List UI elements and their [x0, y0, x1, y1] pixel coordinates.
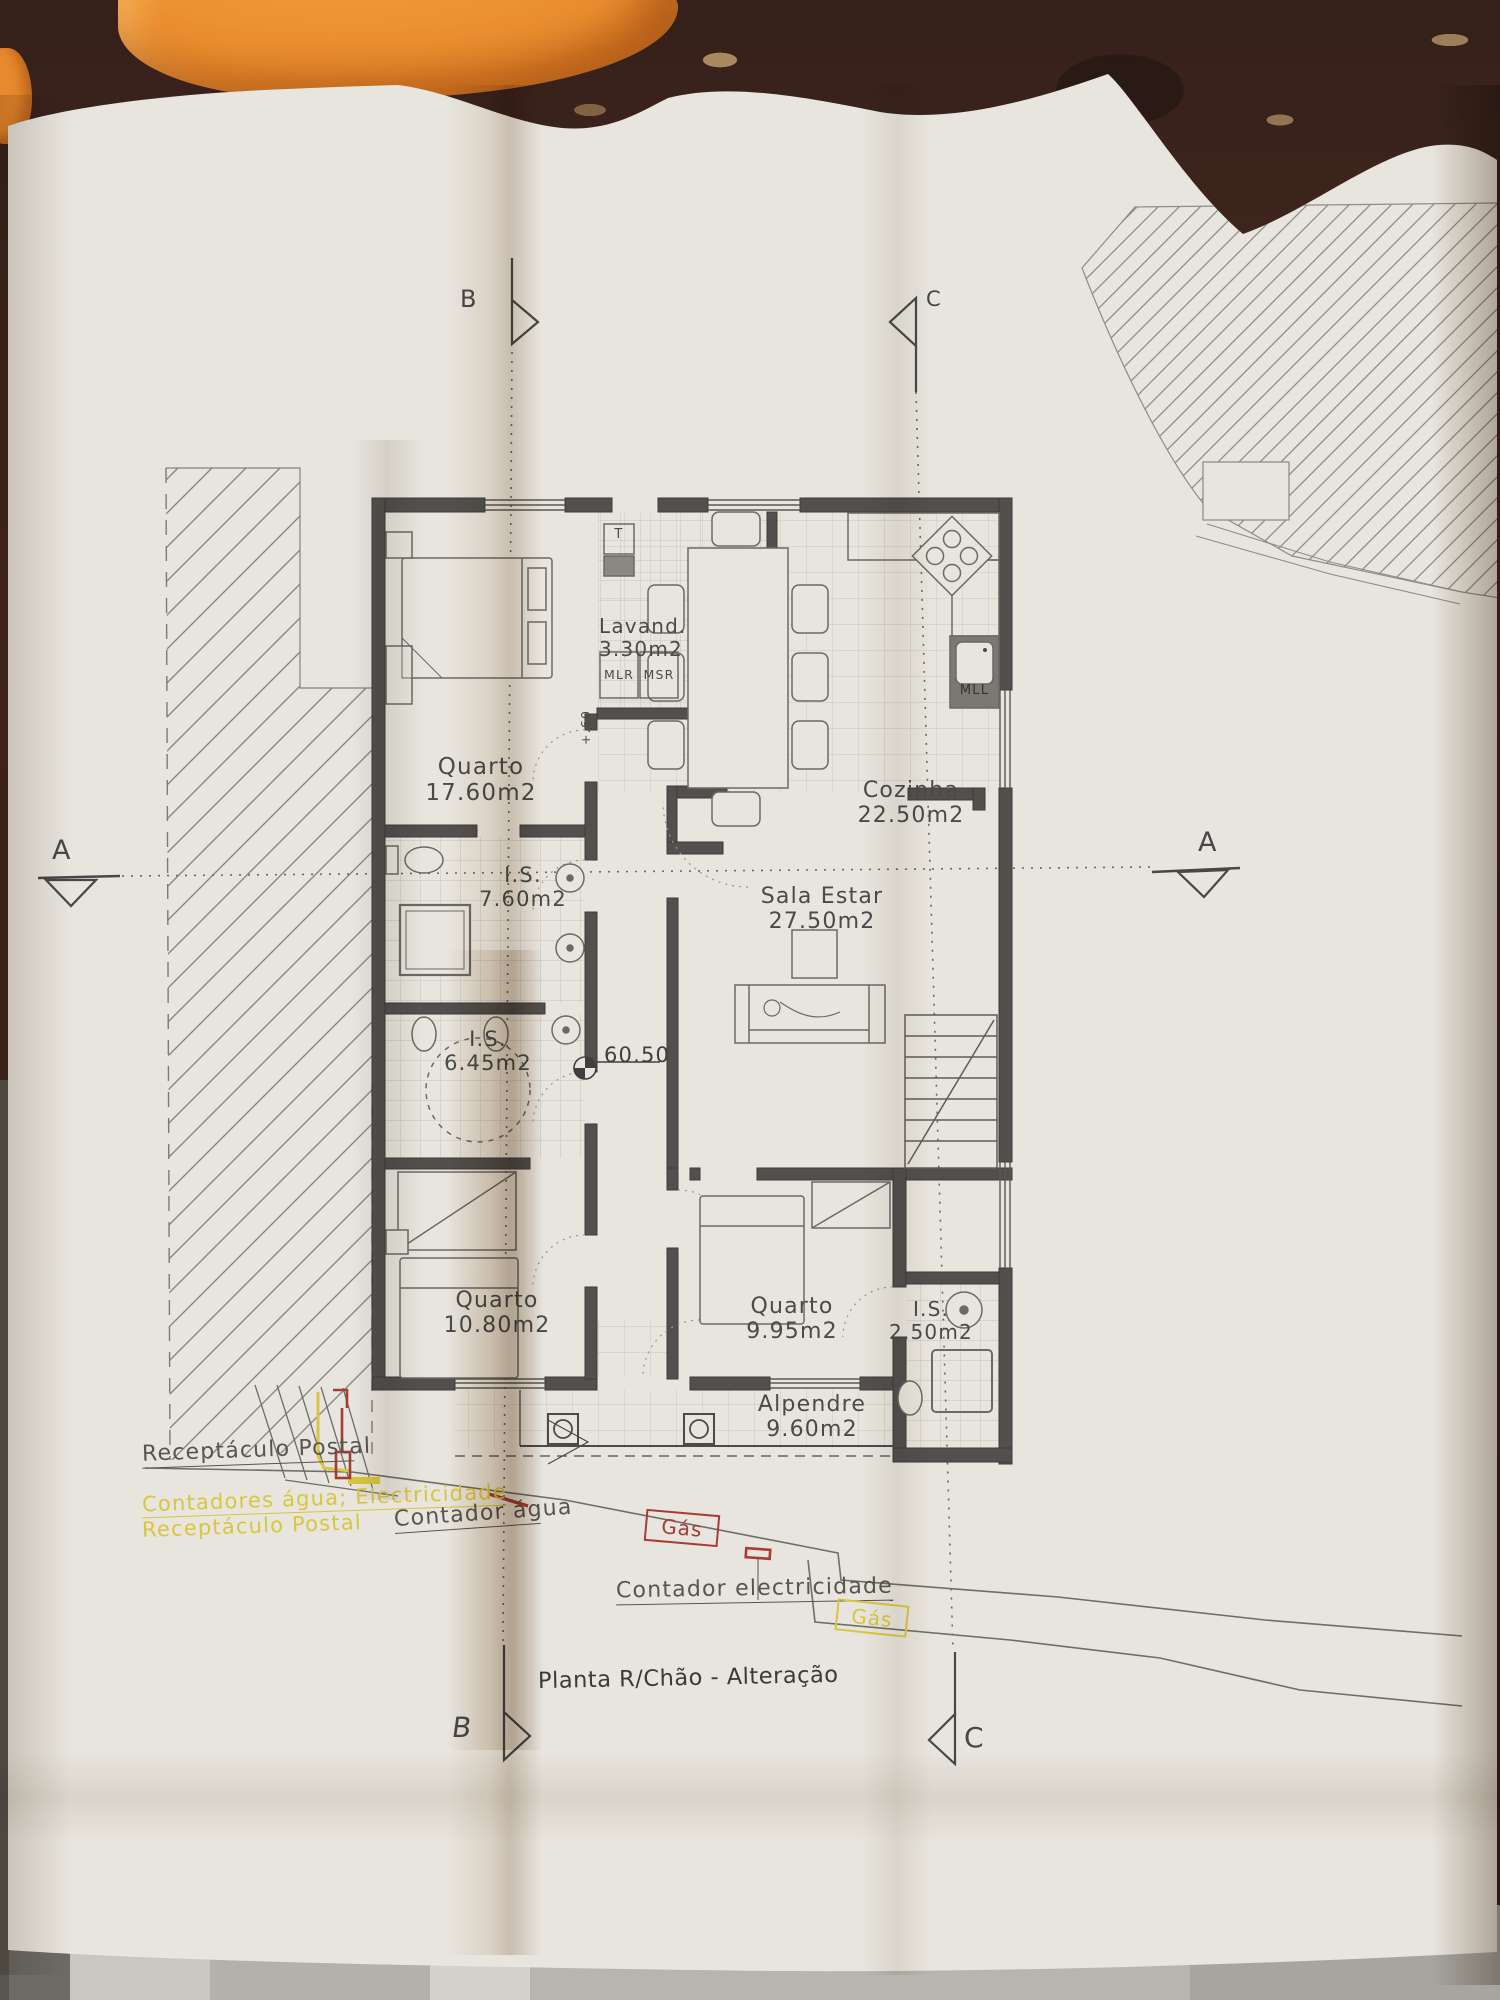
- room-label-quarto-995: Quarto 9.95m2: [707, 1294, 877, 1344]
- equip-label-mlr: MLR: [600, 668, 638, 682]
- marker-top-b: B: [460, 286, 478, 313]
- paper-sheet-drawing: [0, 0, 1500, 2000]
- annotation-gas-red: Gás: [644, 1509, 721, 1547]
- marker-top-c: C: [926, 288, 942, 312]
- step-level-value: +.60: [579, 710, 593, 745]
- room-label-quarto-1080: Quarto 10.80m2: [412, 1288, 582, 1338]
- room-label-lavandaria: Lavand. 3.30m2: [599, 615, 687, 661]
- photo-of-floorplan: Quarto 17.60m2 Lavand. 3.30m2 Cozinha 22…: [0, 0, 1500, 2000]
- room-label-quarto-17: Quarto 17.60m2: [396, 754, 566, 806]
- equip-label-msr: MSR: [640, 668, 678, 682]
- room-label-is-645: I.S. 6.45m2: [408, 1028, 568, 1076]
- equip-label-mll: MLL: [950, 684, 999, 699]
- equip-label-t: T: [604, 528, 634, 543]
- level-value: 60.50: [604, 1044, 670, 1068]
- room-label-cozinha: Cozinha 22.50m2: [816, 778, 1006, 828]
- room-label-is-760: I.S. 7.60m2: [438, 864, 608, 912]
- room-label-is-250: I.S. 2.50m2: [871, 1298, 991, 1344]
- room-label-sala-estar: Sala Estar 27.50m2: [722, 884, 922, 934]
- room-label-alpendre: Alpendre 9.60m2: [722, 1392, 902, 1442]
- marker-bottom-c: C: [964, 1722, 985, 1754]
- marker-right-a: A: [1198, 828, 1218, 859]
- marker-left-a: A: [52, 836, 72, 867]
- hatch-notch: [1203, 462, 1289, 520]
